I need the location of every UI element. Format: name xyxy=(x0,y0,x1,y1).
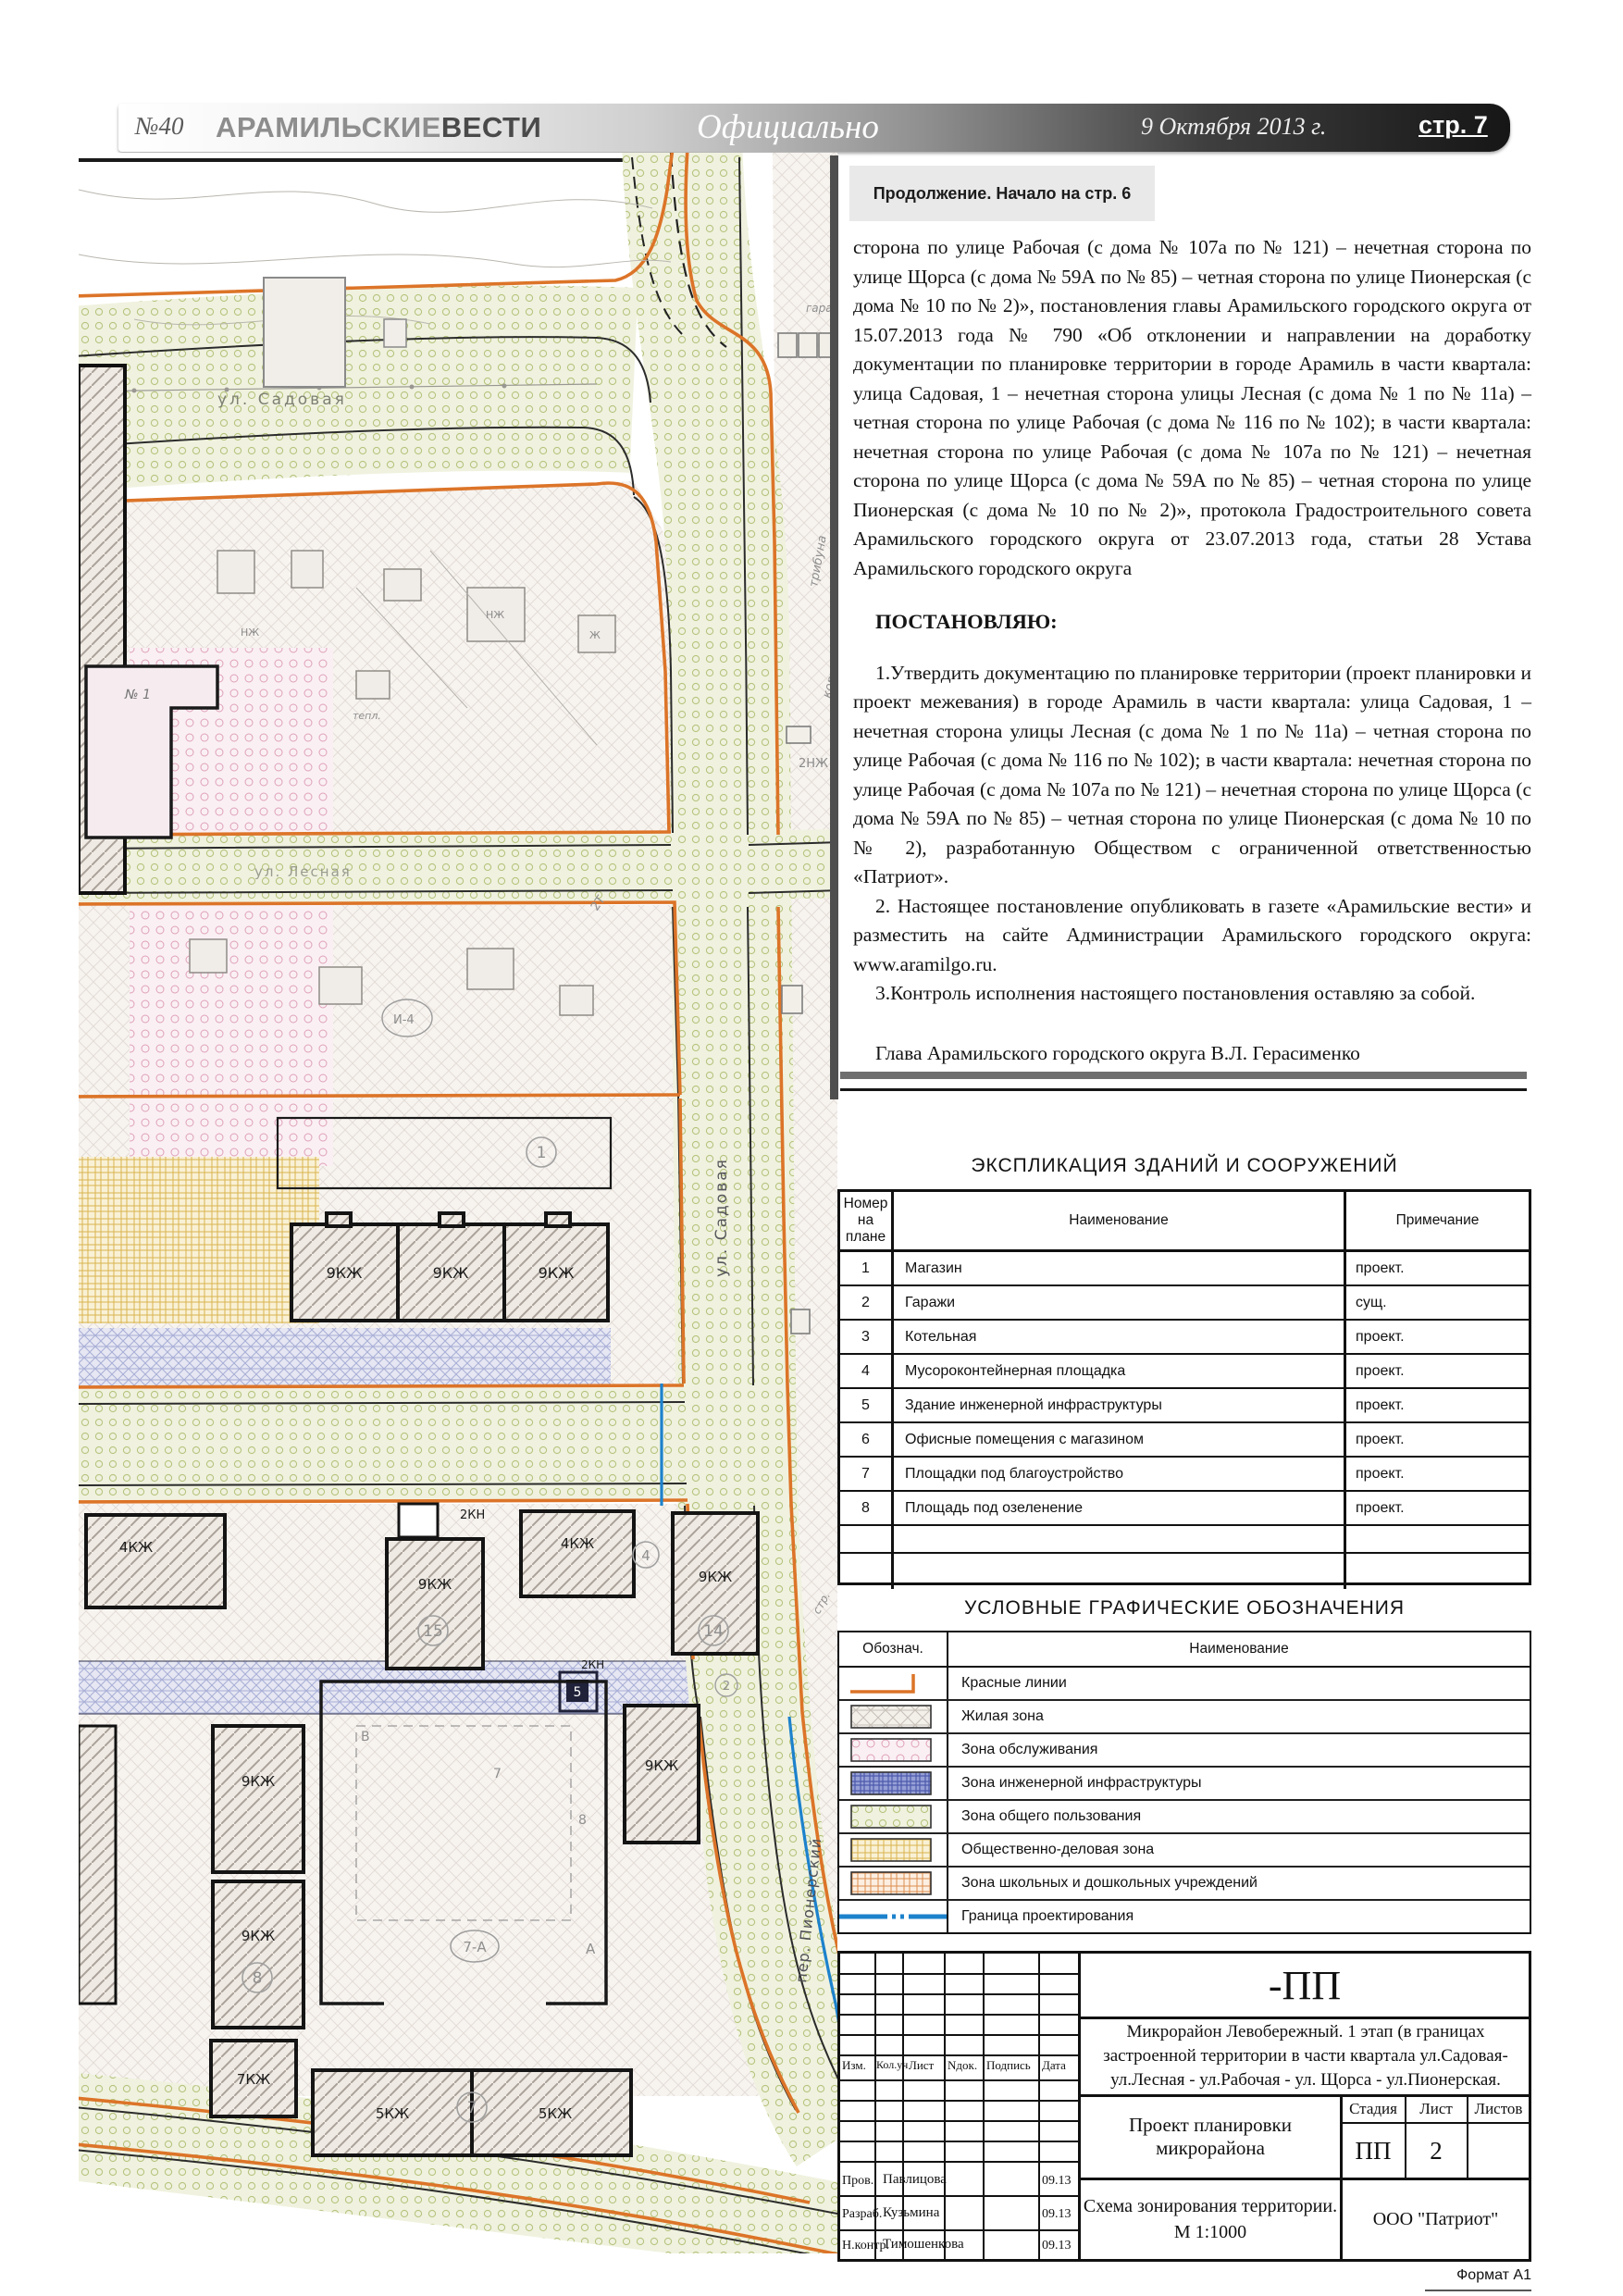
legend-row: Общественно-деловая зона xyxy=(839,1834,1530,1868)
street-label-sadovaya-h: ул. Садовая xyxy=(217,391,347,409)
residential-zone-symbol xyxy=(839,1701,948,1732)
issue-number: №40 xyxy=(135,112,183,141)
col-header: Наименование xyxy=(894,1192,1346,1249)
stage-label: Стадия xyxy=(1343,2096,1404,2122)
table-row: 8Площадь под озеленениепроект. xyxy=(840,1492,1529,1526)
bldg-label: 9КЖ xyxy=(242,1928,275,1944)
resolve-heading: ПОСТАНОВЛЯЮ: xyxy=(853,607,1531,637)
bldg-label: 9КЖ xyxy=(645,1757,678,1774)
legend-row: Зона общего пользования xyxy=(839,1801,1530,1834)
sig-name: Павлицова xyxy=(883,2172,947,2188)
col-ndok: Nдок. xyxy=(948,2058,977,2073)
drawing-title: Схема зонирования территории. xyxy=(1084,2196,1337,2216)
newspaper-page: №40 АРАМИЛЬСКИЕВЕСТИ Официально 9 Октябр… xyxy=(0,0,1623,2296)
legend-row: Красные линии xyxy=(839,1668,1530,1701)
table-row-empty xyxy=(840,1554,1529,1589)
col-koluch: Кол.уч xyxy=(876,2058,908,2072)
bldg-label: 2КН xyxy=(581,1658,604,1671)
bldg-label: 9КЖ xyxy=(418,1576,452,1593)
col-list: Лист xyxy=(909,2058,934,2073)
page-number-text: стр. 7 xyxy=(1419,111,1488,139)
explication-header: Номер на плане Наименование Примечание xyxy=(840,1192,1529,1252)
continuation-notice: Продолжение. Начало на стр. 6 xyxy=(849,166,1155,221)
sig-name: Тимошенкова xyxy=(883,2237,964,2253)
engineering-strip-1 xyxy=(79,1328,611,1385)
table-row-empty xyxy=(840,1526,1529,1554)
legend-table: Обознач. Наименование Красные линии Жила… xyxy=(837,1631,1531,1934)
red-lines-symbol xyxy=(839,1668,948,1699)
business-zone-symbol xyxy=(839,1834,948,1866)
svg-text:НЖ: НЖ xyxy=(241,627,259,639)
v-label: В xyxy=(361,1730,370,1744)
7-label: 7 xyxy=(493,1767,502,1781)
section-title: Официально xyxy=(697,107,879,147)
2nzh-label: 2НЖ xyxy=(799,757,828,771)
resolution-text: сторона по улице Рабочая (с дома № 107а … xyxy=(853,233,1531,1068)
signature-line: Глава Арамильского городского округа В.Л… xyxy=(853,1039,1531,1069)
explication-title: ЭКСПЛИКАЦИЯ ЗДАНИЙ И СООРУЖЕНИЙ xyxy=(837,1155,1531,1177)
sig-role: Пров. xyxy=(842,2174,873,2189)
explication-table: Номер на плане Наименование Примечание 1… xyxy=(837,1189,1531,1585)
business-zone xyxy=(79,1157,319,1323)
sig-role: Разраб. xyxy=(842,2207,882,2222)
col-data: Дата xyxy=(1042,2058,1066,2073)
svg-text:Ж: Ж xyxy=(589,629,601,641)
circled-14: 14 xyxy=(703,1622,724,1641)
legend-row: Граница проектирования xyxy=(839,1901,1530,1932)
table-row: 5Здание инженерной инфраструктурыпроект. xyxy=(840,1389,1529,1423)
circled-4: 4 xyxy=(641,1547,650,1564)
col-header: Номер на плане xyxy=(840,1192,894,1249)
bldg-label: 9КЖ xyxy=(539,1264,575,1282)
bldg-label: 9КЖ xyxy=(327,1264,363,1282)
school-label: № 1 xyxy=(124,688,151,702)
legend-row: Жилая зона xyxy=(839,1701,1530,1734)
bldg-label: 7КЖ xyxy=(237,2071,270,2088)
a-label: А xyxy=(586,1941,596,1957)
zoning-map-svg: № 1 НЖ НЖ Ж тепл. И-4 2Т 1 9КЖ 9КЖ xyxy=(79,153,837,2253)
bldg-label: 9КЖ xyxy=(699,1569,732,1585)
sheet-value: 2 xyxy=(1406,2126,1466,2176)
col-header: Примечание xyxy=(1346,1192,1529,1249)
newspaper-title-bold: ВЕСТИ xyxy=(441,111,541,143)
sheet-label: Лист xyxy=(1406,2096,1466,2122)
legend-header: Обознач. Наименование xyxy=(839,1632,1530,1668)
paragraph: сторона по улице Рабочая (с дома № 107а … xyxy=(853,233,1531,583)
drawing-scale: М 1:1000 xyxy=(1174,2222,1246,2242)
bldg-label: 4КЖ xyxy=(561,1535,594,1552)
newspaper-title-light: АРАМИЛЬСКИЕ xyxy=(216,111,441,143)
item-3: 3.Контроль исполнения настоящего постано… xyxy=(853,979,1531,1009)
teplotrassa-label: тепл. xyxy=(353,710,381,722)
table-row: 6Офисные помещения с магазиномпроект. xyxy=(840,1423,1529,1458)
service-zone-symbol xyxy=(839,1734,948,1766)
street-middle xyxy=(79,1443,694,1445)
sig-date: 09.13 xyxy=(1042,2174,1072,2189)
col-podpis: Подпись xyxy=(986,2058,1031,2073)
8-label: 8 xyxy=(578,1813,587,1828)
bldg-label: 4КЖ xyxy=(119,1539,153,1556)
title-block: Изм. Кол.уч Лист Nдок. Подпись Дата Пров… xyxy=(837,1951,1531,2262)
separator-gray xyxy=(840,1072,1527,1079)
table-row: 2Гаражисущ. xyxy=(840,1286,1529,1321)
street-sadovaya-horizontal xyxy=(79,379,634,399)
sig-date: 09.13 xyxy=(1042,2207,1072,2222)
separator-black xyxy=(840,1088,1527,1091)
zoning-map: № 1 НЖ НЖ Ж тепл. И-4 2Т 1 9КЖ 9КЖ xyxy=(79,153,837,2253)
sheets-label: Листов xyxy=(1468,2096,1529,2122)
company-name: ООО "Патриот" xyxy=(1343,2181,1529,2257)
boundary-symbol xyxy=(839,1901,948,1932)
item-1: 1.Утвердить документацию по планировке т… xyxy=(853,659,1531,892)
legend-row: Зона инженерной инфраструктуры xyxy=(839,1768,1530,1801)
object-description: Микрорайон Левобережный. 1 этап (в грани… xyxy=(1084,2018,1527,2094)
school-zone-symbol xyxy=(839,1868,948,1899)
table-row: 1Магазинпроект. xyxy=(840,1252,1529,1286)
format-underline xyxy=(1425,2290,1531,2291)
legend-row: Зона школьных и дошкольных учреждений xyxy=(839,1868,1530,1901)
table-row: 3Котельнаяпроект. xyxy=(840,1321,1529,1355)
circled-2: 2 xyxy=(723,1680,730,1694)
sig-name: Кузьмина xyxy=(883,2205,939,2221)
newspaper-title: АРАМИЛЬСКИЕВЕСТИ xyxy=(216,111,541,144)
bldg-label: 9КЖ xyxy=(242,1773,275,1790)
page-number: стр. 7 xyxy=(1419,111,1488,140)
item-2: 2. Настоящее постановление опубликовать … xyxy=(853,892,1531,980)
issue-date: 9 Октября 2013 г. xyxy=(1141,113,1326,141)
format-label: Формат А1 xyxy=(1254,2267,1531,2284)
street-label-sadovaya-v: ул. Садовая xyxy=(712,1158,731,1277)
i4-label: И-4 xyxy=(393,1013,415,1027)
masthead-bar: №40 АРАМИЛЬСКИЕВЕСТИ Официально 9 Октябр… xyxy=(118,104,1510,152)
bldg-label: 9КЖ xyxy=(433,1264,469,1282)
circled-15: 15 xyxy=(423,1622,443,1641)
table-row: 4Мусороконтейнерная площадкапроект. xyxy=(840,1355,1529,1389)
engineering-zone-symbol xyxy=(839,1768,948,1799)
circled-8: 8 xyxy=(253,1969,263,1988)
circled-1: 1 xyxy=(537,1144,547,1162)
legend-title: УСЛОВНЫЕ ГРАФИЧЕСКИЕ ОБОЗНАЧЕНИЯ xyxy=(837,1597,1531,1620)
public-zone-symbol xyxy=(839,1801,948,1832)
bldg-label: 2КН xyxy=(460,1508,485,1522)
7a-label: 7-А xyxy=(463,1939,487,1955)
sheets-value xyxy=(1468,2126,1529,2176)
legend-row: Зона обслуживания xyxy=(839,1734,1530,1768)
project-name: Проект планировки микрорайона xyxy=(1083,2096,1338,2178)
column-divider xyxy=(830,155,838,1099)
street-label-lesnaya: ул. Лесная xyxy=(254,863,352,880)
sig-date: 09.13 xyxy=(1042,2239,1072,2253)
stage-value: ПП xyxy=(1343,2126,1404,2176)
table-row: 7Площадки под благоустройствопроект. xyxy=(840,1458,1529,1492)
svg-text:НЖ: НЖ xyxy=(486,609,504,621)
doc-code: -ПП xyxy=(1081,1954,1529,2017)
num-5-label: 5 xyxy=(574,1685,582,1700)
col-izm: Изм. xyxy=(842,2058,866,2073)
drawing-name: Схема зонирования территории. М 1:1000 xyxy=(1083,2181,1338,2257)
